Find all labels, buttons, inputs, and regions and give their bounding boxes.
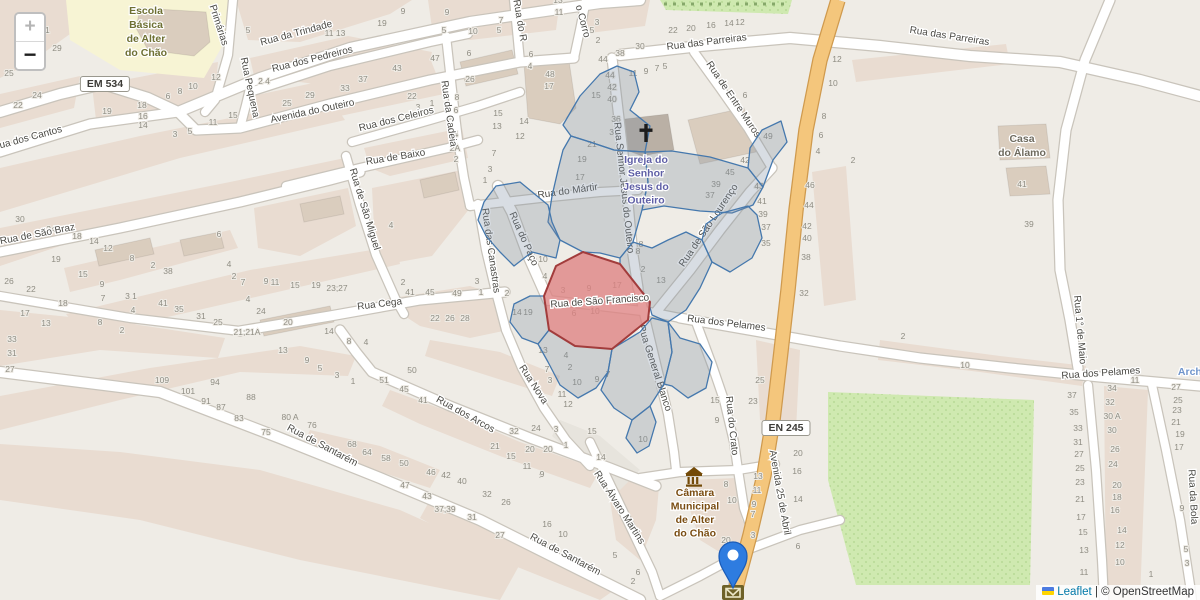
house-number: 32 [509,426,519,436]
house-number: 12 [211,72,221,82]
house-number: 10 [558,529,568,539]
house-number: 19 [311,280,321,290]
house-number: 5 [246,25,251,35]
house-number: 50 [399,458,409,468]
house-number: 12 [515,131,525,141]
house-number: 11 [523,461,532,471]
house-number: 5 [442,25,447,35]
house-number: 30 A [1103,411,1120,421]
town-hall-column [688,477,690,484]
house-number: 45 [425,287,435,297]
house-number: 15 [228,110,238,120]
house-number: 6 [467,48,472,58]
house-number: 5 [497,25,502,35]
house-number: 23 [748,396,758,406]
house-number: 22 [26,284,36,294]
poi-label-igreja-senhor-jesus: Jesus do [623,181,669,193]
house-number: 24 [256,306,266,316]
house-number: 24 [531,423,541,433]
house-number: 5 [663,61,668,71]
town-hall-beam [686,474,702,476]
house-number: 22 [430,313,440,323]
house-number: 18 [137,100,147,110]
house-number: 17 [544,81,554,91]
house-number: 37;39 [434,504,456,514]
house-number: 29 [52,43,62,53]
house-number: 31 [7,348,17,358]
house-number: 8 [347,336,352,346]
house-number: 28 [460,313,470,323]
house-number: 11 [558,389,567,399]
house-number: 9 [644,66,649,76]
house-number: 13 [278,345,288,355]
road-ref-badge-en-245: EN 245 [761,420,810,436]
house-number: 2 [454,154,459,164]
zoom-out-button[interactable]: − [16,42,44,69]
house-number: 46 [805,180,815,190]
house-number: 13 [492,121,502,131]
house-number: 7 [751,509,756,519]
house-number: 25 [282,98,292,108]
house-number: 38 [801,252,811,262]
house-number: 87 [216,402,226,412]
house-number: 25 [1173,395,1183,405]
house-number: 4 [528,61,533,71]
marker-dot [728,550,739,561]
house-number: 4 [227,259,232,269]
house-number: 30 [15,214,25,224]
house-number: 8 [455,92,460,102]
house-number: 76 [307,420,317,430]
house-number: 6 [636,567,641,577]
house-number: 12 [563,399,573,409]
house-number: 6 [819,130,824,140]
house-number: 4 [389,220,394,230]
house-number: 5 [613,550,618,560]
house-number: 21 [1171,417,1181,427]
zoom-in-button[interactable]: + [16,14,44,42]
poi-label-escola-basica: de Alter [127,33,166,45]
green-area-texture [828,392,1034,585]
house-number: 3 [1185,558,1190,568]
house-number: 75 [261,427,271,437]
house-number: 5 [1184,544,1189,554]
house-number: 9 [445,7,450,17]
house-number: 39 [758,209,768,219]
house-number: 11 [271,277,280,287]
house-number: 27 [1171,382,1181,392]
house-number: 9 [100,279,105,289]
poi-label-igreja-senhor-jesus: Senhor [628,168,664,180]
house-number: 14 [89,236,99,246]
house-number: 33 [7,334,17,344]
house-number: 109 [155,375,169,385]
house-number: 27 [495,530,505,540]
house-number: 25 [755,375,765,385]
house-number: 83 [234,413,244,423]
map-layers: 31292524221912108618161415115352 4252933… [0,0,1200,600]
house-number: 10 [188,81,198,91]
house-number: 20 [1112,480,1122,490]
poi-label-igreja-senhor-jesus: Igreja do [624,154,668,166]
house-number: 24 [1108,459,1118,469]
house-number: 4 [816,146,821,156]
house-number: 2 [401,277,406,287]
house-number: 2 4 [258,76,270,86]
house-number: 21;21A [234,327,261,337]
house-number: 17 [20,308,30,318]
house-number: 18 [58,298,68,308]
house-number: 38 [163,266,173,276]
house-number: 2 [120,325,125,335]
house-number: 8 [724,479,729,489]
house-number: 5 [188,126,193,136]
house-number: 49 [452,288,462,298]
house-number: 80 A [281,412,298,422]
house-number: 37 [1067,390,1077,400]
house-number: 19 [377,18,387,28]
house-number: 14 [793,494,803,504]
poi-label-escola-basica: do Chão [125,47,167,59]
house-number: 10 [727,495,737,505]
house-number: 40 [457,476,467,486]
house-number: 2 [151,260,156,270]
house-number: 13 [553,0,563,5]
house-number: 2 [851,155,856,165]
poi-label-archeo: Archeo [1178,366,1200,378]
house-number: 26 [4,276,14,286]
house-number: 32 [1105,397,1115,407]
house-number: 7 [241,277,246,287]
house-number: 13 [41,318,51,328]
house-number: 48 [545,69,555,79]
town-hall-column [692,477,694,484]
house-number: 20 [543,444,553,454]
house-number: 25 [1075,463,1085,473]
house-number: 23 [1172,405,1182,415]
house-number: 29 [305,90,315,100]
house-number: 10 [468,26,478,36]
house-number: 1 [483,175,488,185]
house-number: 3 [173,129,178,139]
house-number: 1 [479,287,484,297]
house-number: 12 [832,54,842,64]
house-number: 16 [792,466,802,476]
house-number: 41 [757,196,767,206]
house-number: 4 [543,271,548,281]
house-number: 23;27 [326,283,348,293]
house-number: 64 [362,447,372,457]
house-number: 41 [405,287,415,297]
house-number: 7 [492,148,497,158]
house-number: 13 [753,471,763,481]
house-number: 40 [802,233,812,243]
house-number: 1 [564,440,569,450]
house-number: 10 [828,78,838,88]
house-number: 6 [217,229,222,239]
house-number: 5 [318,363,323,373]
house-number: 18 [1112,492,1122,502]
house-number: 25 [213,317,223,327]
poi-label-escola-basica: Escola [129,5,163,17]
house-number: 44 [598,54,608,64]
house-number: 27 [1074,449,1084,459]
poi-label-escola-basica: Básica [129,19,163,31]
house-number: 9 [401,6,406,16]
house-number: 45 [399,384,409,394]
house-number: 15 [506,451,516,461]
house-number: 8 [178,86,183,96]
house-number: 58 [381,453,391,463]
house-number: 15 [710,395,720,405]
house-number: 21 [1075,494,1085,504]
house-number: 3 [554,424,559,434]
house-number: 26 [501,497,511,507]
house-number: 37 [761,222,771,232]
house-number: 19 [102,106,112,116]
house-number: 3 [751,530,756,540]
house-number: 94 [210,377,220,387]
house-number: 47 [400,480,410,490]
poi-label-camara-municipal: do Chão [674,528,716,540]
house-number: 23 [1075,477,1085,487]
house-number: 10 [1115,557,1125,567]
house-number: 9 [305,355,310,365]
house-number: 17 [1076,512,1086,522]
house-number: 19 [1175,429,1185,439]
house-number: 101 [181,386,195,396]
house-number: 9 [715,415,720,425]
house-number: 9 [1180,503,1185,513]
house-number: 4 [246,294,251,304]
house-number: 35 [1069,407,1079,417]
house-number: 7 [101,293,106,303]
road-ref-badge-em-534: EM 534 [80,76,130,92]
house-number: 43 [392,63,402,73]
house-number: 16 [1110,505,1120,515]
building [1006,166,1050,196]
poi-label-camara-municipal: Câmara [676,487,715,499]
house-number: 4 [364,337,369,347]
house-number: 22 [407,91,417,101]
house-number: 2 [232,271,237,281]
house-number: 8 [130,253,135,263]
house-number: 34 [1107,383,1117,393]
cross-vertical [644,124,647,142]
house-number: 3 1 [125,291,137,301]
house-number: 14 [138,120,148,130]
house-number: 6 [166,91,171,101]
map-canvas[interactable]: 31292524221912108618161415115352 4252933… [0,0,1200,600]
house-number: 15 [587,426,597,436]
house-number: 24 [32,90,42,100]
house-number: 32 [799,288,809,298]
house-number: 20 [793,448,803,458]
house-number: 25 [4,68,14,78]
house-number: 51 [379,375,389,385]
house-number: 19 [51,254,61,264]
house-number: 16 [542,519,552,529]
house-number: 14 [324,326,334,336]
house-number: 12 [103,243,113,253]
house-number: 9 [752,499,757,509]
house-number: 7 [545,364,550,374]
house-number: 20 [686,23,696,33]
house-number: 12 [1115,540,1125,550]
house-number: 15 [290,280,300,290]
house-number: 16 [706,20,716,30]
house-number: 4 [131,305,136,315]
leaflet-link[interactable]: Leaflet [1057,586,1092,598]
house-number: 3 [548,375,553,385]
house-number: 8 [98,317,103,327]
house-number: 38 [615,48,625,58]
house-number: 6 [743,90,748,100]
attribution-separator: | [1092,586,1101,598]
house-number: 91 [201,396,211,406]
house-number: 2 [631,576,636,586]
house-number: 3 [595,17,600,27]
house-number: 3 [488,164,493,174]
house-number: 27 [5,364,15,374]
house-number: 11 [555,7,564,17]
poi-label-casa-do-alamo: Casa [1009,133,1034,145]
house-number: 1 [1149,569,1154,579]
poi-label-camara-municipal: Municipal [671,501,720,513]
osm-attribution: © OpenStreetMap [1101,586,1194,598]
town-hall-column [696,477,698,484]
house-number: 11 [1080,567,1089,577]
house-number: 33 [1073,423,1083,433]
house-number: 3 [475,276,480,286]
house-number: 30 [1107,425,1117,435]
house-number: 6 [796,541,801,551]
house-number: 7 [499,15,504,25]
house-number: 15 [1078,527,1088,537]
house-number: 1 [351,376,356,386]
house-number: 10 [960,360,970,370]
house-number: 43 [422,491,432,501]
house-number: 26 [1110,444,1120,454]
house-number: 12 [735,17,745,27]
house-number: 2 [596,35,601,45]
house-number: 30 [635,41,645,51]
house-number: 31 [467,512,477,522]
house-number: 21 [490,441,500,451]
house-number: 9 [264,276,269,286]
zoom-control: + − [14,12,46,71]
house-number: 44 [804,200,814,210]
house-number: 41 [158,298,168,308]
house-number: 50 [407,365,417,375]
house-number: 41 [418,395,428,405]
house-number: 17 [1174,442,1184,452]
house-number: 22 [13,100,23,110]
house-number: 46 [426,467,436,477]
house-number: 22 [668,25,678,35]
house-number: 41 [1017,179,1027,189]
house-number: 32 [482,489,492,499]
house-number: 35 [761,238,771,248]
house-number: 13 [1079,545,1089,555]
house-number: 8 [822,111,827,121]
house-number: 14 [724,18,734,28]
house-number: 7 [655,63,660,73]
house-number: 14 [519,116,529,126]
house-number: 26 [445,313,455,323]
poi-label-casa-do-alamo: do Álamo [998,146,1046,159]
house-number: 26 [465,74,475,84]
house-number: 31 [1073,437,1083,447]
house-number: 6 [529,49,534,59]
house-number: 2 [901,331,906,341]
house-number: 42 [802,221,812,231]
house-number: 88 [246,392,256,402]
house-number: 15 [78,269,88,279]
town-hall-base [686,485,702,487]
house-number: 35 [174,304,184,314]
house-number: 68 [347,439,357,449]
house-number: 14 [1117,525,1127,535]
house-number: 20 [283,317,293,327]
house-number: 14 [596,452,606,462]
house-number: 47 [430,53,440,63]
house-number: 3 [335,370,340,380]
house-number: 11 [753,485,762,495]
cross-horizontal [640,129,653,132]
house-number: 9 [540,469,545,479]
house-number: 37 [358,74,368,84]
house-number: 39 [1024,219,1034,229]
poi-label-camara-municipal: de Alter [676,514,715,526]
house-number: 11 [209,117,218,127]
house-number: 15 [493,108,503,118]
house-number: 33 [340,83,350,93]
house-number: 42 [441,470,451,480]
leaflet-flag-icon [1042,587,1054,595]
house-number: 20 [525,444,535,454]
attribution-bar: Leaflet | © OpenStreetMap [1036,585,1200,600]
poi-label-igreja-senhor-jesus: Outeiro [627,195,664,207]
house-number: 31 [196,311,206,321]
house-number: 2 [505,288,510,298]
